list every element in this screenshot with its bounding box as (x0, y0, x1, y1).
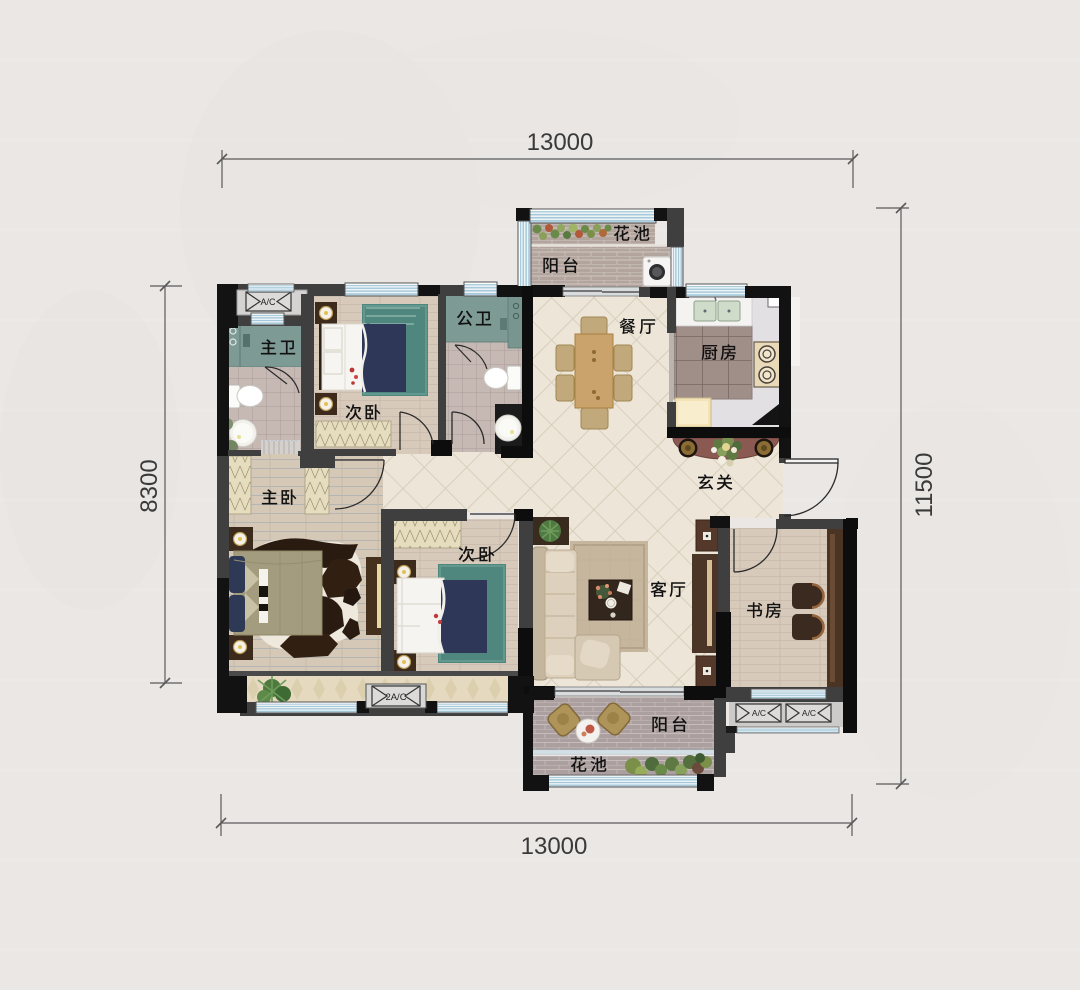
svg-text:8300: 8300 (136, 459, 163, 512)
svg-text:11500: 11500 (911, 453, 938, 518)
svg-text:A/C: A/C (752, 708, 766, 718)
svg-text:2A/C: 2A/C (385, 692, 406, 703)
svg-text:13000: 13000 (527, 129, 594, 156)
svg-text:13000: 13000 (521, 833, 588, 860)
svg-text:A/C: A/C (260, 297, 276, 307)
svg-text:A/C: A/C (802, 708, 816, 718)
